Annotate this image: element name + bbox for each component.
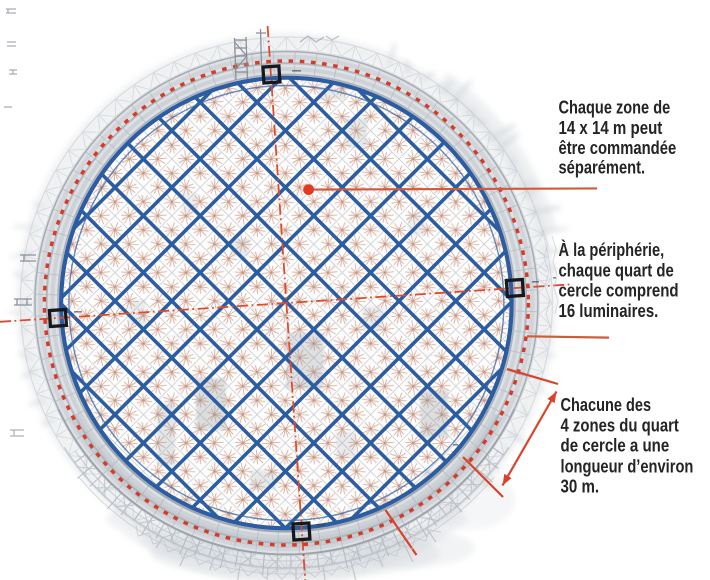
- svg-text:16 luminaires.: 16 luminaires.: [559, 301, 659, 321]
- svg-text:séparément.: séparément.: [559, 157, 646, 177]
- svg-text:30 m.: 30 m.: [561, 477, 600, 497]
- svg-text:14 x 14 m peut: 14 x 14 m peut: [559, 118, 663, 138]
- svg-text:chaque quart de: chaque quart de: [559, 261, 674, 281]
- svg-text:4 zones du quart: 4 zones du quart: [561, 415, 679, 435]
- svg-text:À la périphérie,: À la périphérie,: [559, 239, 665, 260]
- svg-text:longueur d’environ: longueur d’environ: [561, 456, 694, 476]
- svg-text:être commandée: être commandée: [559, 138, 677, 158]
- svg-text:de cercle a une: de cercle a une: [561, 436, 670, 456]
- svg-text:Chaque zone de: Chaque zone de: [559, 98, 671, 118]
- svg-text:cercle comprend: cercle comprend: [559, 281, 679, 301]
- svg-text:Chacune des: Chacune des: [561, 395, 652, 415]
